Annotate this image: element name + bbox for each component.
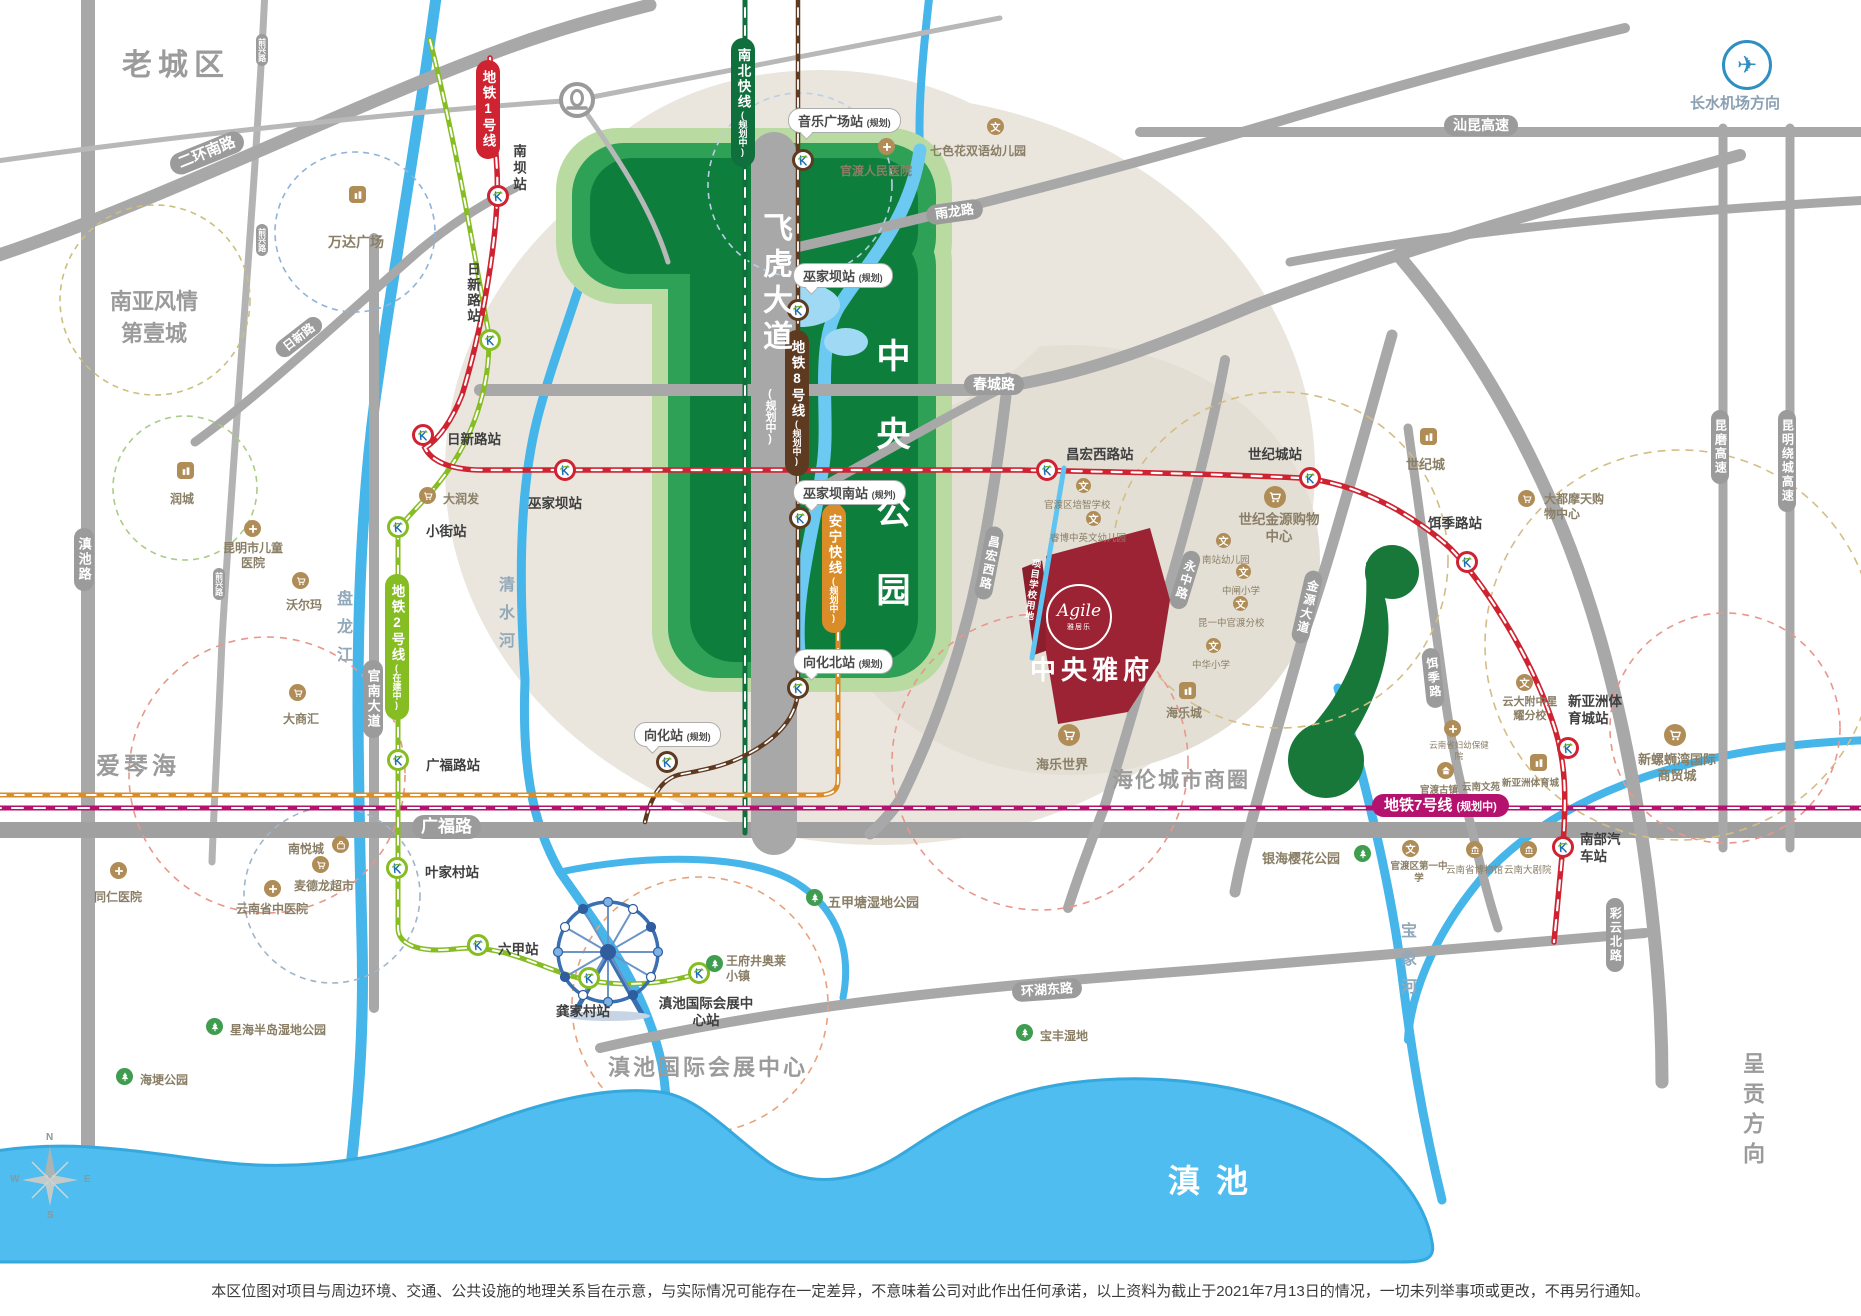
metro-pill-nanbei-label: 南北快线 bbox=[736, 48, 751, 110]
poi-hailecheng: 海乐城 bbox=[1166, 704, 1202, 721]
cart-icon bbox=[292, 572, 309, 589]
metro-pill-anning-label: 安宁快线 bbox=[827, 514, 842, 576]
compass-w: W bbox=[10, 1174, 19, 1185]
poi-wujiatang: 五甲塘湿地公园 bbox=[828, 892, 919, 911]
poi-haigenggongyuan: 海埂公园 bbox=[140, 1071, 188, 1088]
buildings-icon bbox=[1420, 428, 1437, 445]
hospital-icon bbox=[264, 880, 281, 897]
poi-yinhaiyinghua: 银海樱花公园 bbox=[1262, 848, 1340, 867]
station-marker-nanba bbox=[487, 185, 509, 207]
callout-xianghua: 向化站 (规划) bbox=[634, 722, 721, 747]
poi-ertongyiyuan: 昆明市儿童医院 bbox=[218, 541, 288, 571]
metro-pill-line1-label: 地铁1号线 bbox=[481, 70, 496, 149]
road-ne-horizontal bbox=[1290, 200, 1861, 262]
station-marker-liujia bbox=[467, 934, 489, 956]
callout-wujiaba-name: 巫家坝站 bbox=[803, 269, 855, 284]
poi-wandaguangchang: 万达广场 bbox=[328, 232, 384, 252]
road-pill-guannan: 官南大道 bbox=[363, 660, 383, 738]
cart-icon bbox=[1058, 724, 1080, 746]
road-pill-qianxing-2: 前兴路 bbox=[256, 224, 268, 256]
map-canvas bbox=[0, 0, 1861, 1316]
compass-e: E bbox=[84, 1174, 91, 1185]
area-label-nanyafengqing: 南亚风情第壹城 bbox=[104, 286, 204, 350]
poi-ruibo: 睿博中英文幼儿园 bbox=[1050, 530, 1126, 544]
tree-icon bbox=[806, 889, 823, 906]
hospital-icon bbox=[1444, 720, 1461, 737]
tree-icon bbox=[1016, 1024, 1033, 1041]
area-label-hailun: 海伦城市商圈 bbox=[1112, 764, 1250, 794]
metro-pill-line1: 地铁1号线 bbox=[476, 60, 500, 159]
station-marker-rixin-l1 bbox=[412, 424, 434, 446]
road-pill-chuncheng: 春城路 bbox=[964, 374, 1024, 395]
callout-xianghua-tag: (规划) bbox=[687, 732, 711, 742]
road-erji-rd bbox=[1408, 428, 1498, 928]
road-pill-qianxing-3: 前兴路 bbox=[213, 568, 225, 600]
poi-dajuyuan: 云南大剧院 bbox=[1504, 862, 1552, 876]
buildings-icon bbox=[1179, 682, 1196, 699]
area-label-aiqinhai: 爱琴海 bbox=[96, 746, 180, 781]
poi-dashanghui: 大商汇 bbox=[283, 710, 319, 727]
school-icon bbox=[1233, 596, 1248, 611]
station-marker-xianghuabei bbox=[787, 677, 809, 699]
road-label-feihu: 飞虎大道 bbox=[752, 212, 796, 356]
station-marker-erjilu bbox=[1456, 551, 1478, 573]
poi-bowuguan: 云南省博物馆 bbox=[1446, 862, 1503, 876]
poi-shijijinyuan: 世纪金源购物中心 bbox=[1238, 512, 1320, 546]
project-logo-agile: Agile bbox=[1057, 603, 1101, 620]
road-pill-guangfu: 广福路 bbox=[412, 815, 481, 839]
school-icon bbox=[1402, 840, 1419, 857]
poi-qisehua: 七色花双语幼儿园 bbox=[930, 142, 1026, 159]
poi-guandugulzhen: 官渡古镇 bbox=[1420, 782, 1458, 796]
school-icon bbox=[987, 118, 1004, 135]
metro-pill-line7-sub: (规划中) bbox=[1457, 801, 1497, 813]
poi-baofengshidi: 宝丰湿地 bbox=[1040, 1027, 1088, 1044]
school-icon bbox=[1236, 564, 1251, 579]
compass-n: N bbox=[46, 1132, 53, 1143]
poi-guandurenminyiyuan: 官渡人民医院 bbox=[840, 162, 912, 179]
callout-xianghuabei-name: 向化北站 bbox=[803, 655, 855, 670]
theater-icon bbox=[1520, 841, 1537, 858]
station-label-huizhanzhongxin: 滇池国际会展中心站 bbox=[658, 996, 754, 1030]
station-marker-shijicheng bbox=[1299, 467, 1321, 489]
area-label-chenggong: 呈贡方向 bbox=[1736, 1052, 1768, 1172]
poi-nanyuecheng: 南悦城 bbox=[288, 840, 324, 857]
temple-icon bbox=[1437, 762, 1454, 779]
callout-wujiaba-tag: (规划) bbox=[859, 273, 883, 283]
station-label-gongjiacun: 龚家村站 bbox=[556, 1000, 610, 1020]
compass-s: S bbox=[47, 1210, 54, 1221]
hospital-icon bbox=[878, 138, 895, 155]
station-label-xinyazhou: 新亚洲体育城站 bbox=[1568, 694, 1632, 728]
station-label-shijicheng: 世纪城站 bbox=[1248, 443, 1302, 463]
poi-xinluosiwan: 新螺蛳湾国际商贸城 bbox=[1634, 752, 1720, 785]
tree-icon bbox=[116, 1068, 133, 1085]
river-label-baoxianghe: 宝象河 bbox=[1394, 922, 1418, 1006]
poi-runcheng: 润城 bbox=[170, 490, 194, 507]
poi-kunyizhong: 昆一中官渡分校 bbox=[1198, 615, 1265, 629]
station-marker-changhongxilu bbox=[1036, 459, 1058, 481]
project-logo: Agile 雅居乐 bbox=[1046, 584, 1112, 650]
cart-icon bbox=[419, 487, 436, 504]
school-icon bbox=[1206, 638, 1221, 653]
metro-pill-nanbei-sub: (规划中) bbox=[738, 110, 748, 157]
river-label-qingshuihe: 清水河 bbox=[492, 576, 516, 660]
station-marker-xianghua bbox=[656, 751, 678, 773]
poi-yundafuzhong: 云大附中星耀分校 bbox=[1498, 696, 1562, 724]
metro-pill-line7: 地铁7号线 (规划中) bbox=[1372, 794, 1509, 817]
poi-zhongzhaxiaoxue: 中闸小学 bbox=[1222, 583, 1260, 597]
area-label-changshui: 长水机场方向 bbox=[1690, 92, 1780, 113]
station-marker-yinyueguangchang bbox=[792, 149, 814, 171]
project-logo-sub: 雅居乐 bbox=[1067, 622, 1091, 632]
museum-icon bbox=[1466, 841, 1483, 858]
poi-guandu-no1: 官渡区第一中学 bbox=[1388, 861, 1450, 885]
road-pill-dianchilu: 滇池路 bbox=[74, 528, 94, 591]
station-label-erjilu: 饵季路站 bbox=[1428, 512, 1482, 532]
project-name: 中央雅府 bbox=[1030, 650, 1154, 687]
station-label-wujiaba: 巫家坝站 bbox=[528, 492, 582, 512]
road-huanhu-east bbox=[600, 933, 1645, 1048]
station-marker-gongjiacun bbox=[578, 967, 600, 989]
station-label-yejiacun: 叶家村站 bbox=[425, 861, 479, 881]
rail-hub-icon bbox=[561, 84, 593, 116]
area-label-dianchi: 滇池 bbox=[1168, 1156, 1264, 1202]
area-label-zhongyanggongyuan: 中央公园 bbox=[866, 338, 915, 650]
metro-pill-line7-label: 地铁7号线 bbox=[1384, 797, 1452, 814]
school-icon bbox=[1076, 478, 1091, 493]
tree-icon bbox=[206, 1018, 223, 1035]
road-pill-raocheng: 昆明绕城高速 bbox=[1778, 410, 1796, 512]
station-label-rixin-l1: 日新路站 bbox=[447, 428, 501, 448]
poi-xinyazhoutiyucheng: 新亚洲体育城 bbox=[1502, 775, 1559, 789]
callout-wujiabanan-name: 巫家坝南站 bbox=[803, 486, 868, 501]
poi-xinghaibandao: 星海半岛湿地公园 bbox=[230, 1021, 326, 1038]
station-marker-xiaojie bbox=[387, 516, 409, 538]
station-label-nanbuqichezhan: 南部汽车站 bbox=[1580, 832, 1630, 866]
poi-dadumotian: 大都摩天购物中心 bbox=[1544, 492, 1606, 522]
school-icon bbox=[1216, 533, 1231, 548]
hospital-icon bbox=[244, 520, 261, 537]
callout-yinyueguangchang: 音乐广场站 (规划) bbox=[788, 108, 901, 133]
station-label-liujia: 六甲站 bbox=[498, 938, 539, 958]
tree-icon bbox=[706, 955, 723, 972]
callout-wujiaba: 巫家坝站 (规划) bbox=[793, 263, 893, 288]
station-label-rixin-l2: 日新路站 bbox=[462, 262, 482, 324]
callout-xianghua-name: 向化站 bbox=[644, 728, 683, 743]
metro-pill-line2-sub: (在建中) bbox=[392, 663, 402, 710]
station-marker-rixin-l2 bbox=[479, 329, 501, 351]
cart-icon bbox=[1264, 486, 1286, 508]
station-marker-guangfulu bbox=[387, 749, 409, 771]
road-pill-qianxing-1: 前兴路 bbox=[256, 34, 268, 66]
poi-shijicheng: 世纪城 bbox=[1406, 454, 1445, 473]
poi-woerma: 沃尔玛 bbox=[286, 596, 322, 613]
metro-pill-line2-label: 地铁2号线 bbox=[390, 584, 405, 663]
poi-haileshijie: 海乐世界 bbox=[1036, 754, 1088, 773]
metro-pill-nanbei: 南北快线(规划中) bbox=[731, 38, 755, 167]
metro-pill-line2: 地铁2号线(在建中) bbox=[385, 574, 409, 720]
buildings-icon bbox=[349, 186, 366, 203]
airplane-icon: ✈ bbox=[1722, 40, 1772, 90]
poi-yunnanwenyuan: 云南文苑 bbox=[1462, 779, 1500, 793]
school-icon bbox=[1086, 511, 1101, 526]
callout-xianghuabei-tag: (规划) bbox=[859, 659, 883, 669]
station-marker-wujiabanan-l8 bbox=[789, 507, 811, 529]
poi-peizhixuexiao: 官渡区培智学校 bbox=[1044, 497, 1111, 511]
poi-darunfa: 大润发 bbox=[443, 490, 479, 507]
road-erhuan-south bbox=[0, 5, 650, 258]
area-label-huizhanzhongxin: 滇池国际会展中心 bbox=[608, 1050, 808, 1082]
road-pill-shankun: 汕昆高速 bbox=[1444, 115, 1518, 136]
cart-icon bbox=[289, 684, 306, 701]
road-pill-caiyunbei: 彩云北路 bbox=[1606, 898, 1624, 972]
station-label-changhongxilu: 昌宏西路站 bbox=[1066, 443, 1134, 463]
poi-fuyoubaojian: 云南省妇幼保健院 bbox=[1426, 740, 1492, 761]
poi-zhongyiyuan: 云南省中医院 bbox=[236, 900, 308, 917]
hospital-icon bbox=[110, 862, 127, 879]
poi-maidelong: 麦德龙超市 bbox=[294, 877, 354, 894]
cart-icon bbox=[1518, 490, 1535, 507]
cart-icon bbox=[1664, 724, 1686, 746]
disclaimer-text: 本区位图对项目与周边环境、交通、公共设施的地理关系旨在示意，与实际情况可能存在一… bbox=[0, 1280, 1861, 1301]
school-icon bbox=[1516, 674, 1533, 691]
poi-tongrenyiyuan: 同仁医院 bbox=[94, 888, 142, 905]
station-marker-xinyazhou bbox=[1557, 737, 1579, 759]
tree-icon bbox=[1354, 845, 1371, 862]
callout-xianghuabei: 向化北站 (规划) bbox=[793, 649, 893, 674]
callout-yinyueguangchang-name: 音乐广场站 bbox=[798, 114, 863, 129]
station-marker-yejiacun bbox=[386, 857, 408, 879]
poi-zhonghuaxiaoxue: 中华小学 bbox=[1192, 657, 1230, 671]
river-label-panlongjiang: 盘龙江 bbox=[330, 590, 354, 674]
buildings-icon bbox=[177, 462, 194, 479]
station-label-xiaojie: 小街站 bbox=[426, 520, 467, 540]
metro-pill-line8-sub: (规划中) bbox=[792, 419, 802, 466]
station-marker-nanbuqichezhan bbox=[1552, 836, 1574, 858]
station-label-guangfulu: 广福路站 bbox=[426, 754, 480, 774]
metro-pill-anning-sub: (规划中) bbox=[829, 576, 839, 623]
cart-icon bbox=[312, 856, 329, 873]
station-label-nanba: 南坝站 bbox=[508, 144, 528, 194]
poi-wangfujing: 王府井奥莱小镇 bbox=[726, 954, 788, 984]
area-label-laochengqu: 老城区 bbox=[122, 40, 230, 84]
callout-yinyueguangchang-tag: (规划) bbox=[867, 118, 891, 128]
road-label-feihu-sub: (规划中) bbox=[762, 388, 778, 445]
road-pill-kunmo: 昆磨高速 bbox=[1711, 410, 1729, 484]
buildings-icon bbox=[1530, 754, 1547, 771]
station-marker-wujiaba bbox=[554, 459, 576, 481]
metro-pill-anning: 安宁快线(规划中) bbox=[822, 504, 846, 633]
bag-icon bbox=[332, 836, 349, 853]
location-map: 二环南路 滇池路 前兴路 前兴路 前兴路 日新路 官南大道 广福路 雨龙路 春城… bbox=[0, 0, 1861, 1316]
